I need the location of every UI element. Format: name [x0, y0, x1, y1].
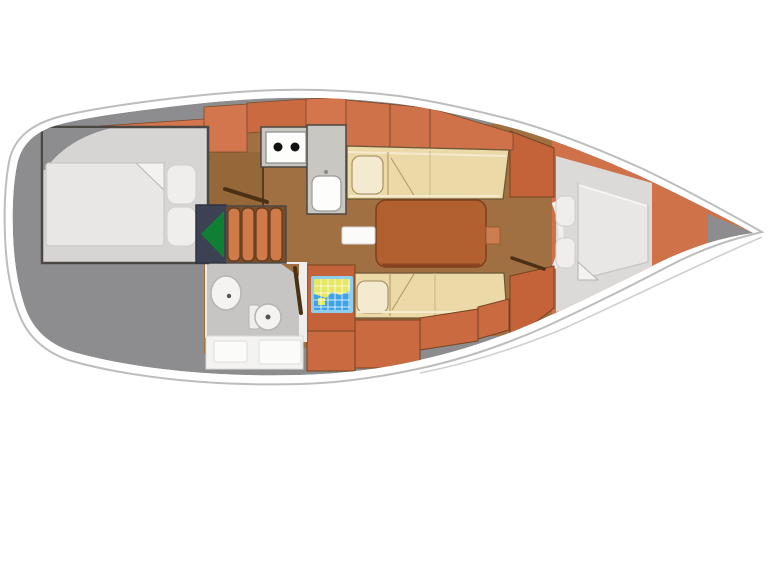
saloon-bench: [342, 227, 375, 244]
settee-starboard-pillow: [352, 156, 383, 194]
head-bathroom: [206, 262, 307, 369]
head-sink: [211, 276, 241, 310]
table-side-tab: [486, 227, 500, 244]
galley-faucet: [324, 170, 328, 174]
step-1: [228, 208, 240, 261]
step-3: [256, 208, 268, 261]
nautical-chart: [311, 276, 353, 313]
stove: [266, 132, 306, 163]
aft-cabin-pillow-2: [167, 207, 196, 246]
aft-cabin-bed: [46, 163, 164, 246]
settee-port-pillow: [357, 281, 388, 313]
galley-sink: [312, 176, 341, 211]
companionway: [196, 205, 286, 263]
step-4: [270, 208, 282, 261]
head-sink-drain: [227, 294, 231, 298]
aft-cabin-pillow-1: [167, 165, 196, 204]
settee-starboard: [347, 146, 509, 199]
stove-burner-2: [291, 143, 300, 152]
vberth-pillow-1: [556, 196, 575, 226]
stove-burner-1: [274, 143, 283, 152]
aft-cabin: [42, 127, 208, 263]
step-2: [242, 208, 254, 261]
floor-plan-svg: [0, 0, 768, 576]
port-trim-1: [355, 320, 420, 368]
toilet-drain: [266, 315, 271, 320]
head-cabinet-panel-1: [214, 341, 247, 362]
saloon-table: [376, 200, 486, 267]
boat-floor-plan: [0, 0, 768, 576]
head-cabinet-panel-2: [259, 340, 301, 364]
side-band-4: [306, 97, 346, 129]
vberth-pillow-2: [556, 238, 575, 268]
chart-table-lower: [307, 331, 355, 371]
side-band-2: [204, 104, 247, 152]
